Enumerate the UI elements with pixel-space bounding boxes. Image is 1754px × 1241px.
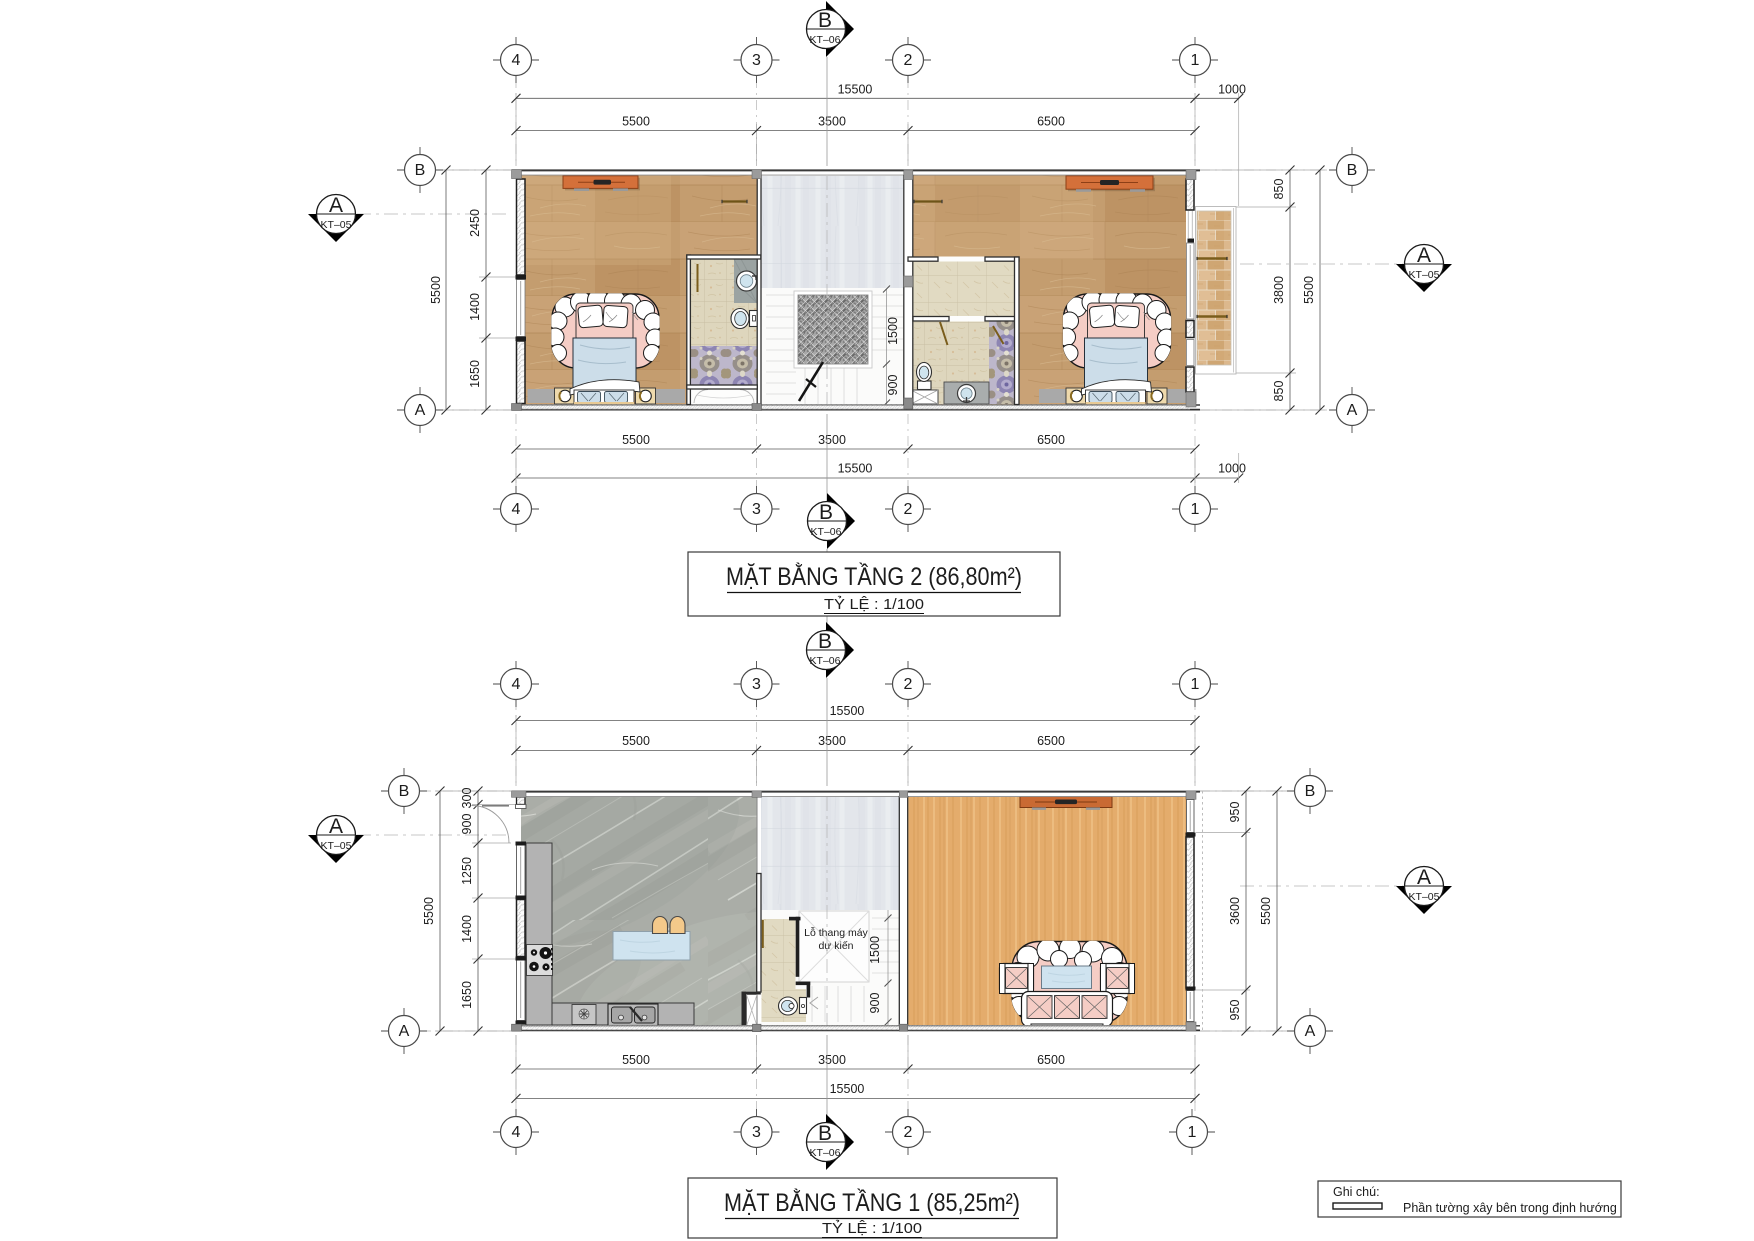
svg-text:KT–05: KT–05 (321, 840, 352, 852)
svg-text:3: 3 (752, 676, 761, 693)
svg-text:MẶT BẰNG TẦNG 1 (85,25m²): MẶT BẰNG TẦNG 1 (85,25m²) (724, 1188, 1020, 1217)
svg-text:3: 3 (752, 1124, 761, 1141)
svg-text:5500: 5500 (622, 734, 650, 748)
svg-text:B: B (819, 501, 833, 524)
svg-text:A: A (1305, 1023, 1316, 1040)
svg-text:15500: 15500 (838, 462, 873, 476)
svg-text:B: B (818, 630, 832, 653)
svg-text:950: 950 (1228, 802, 1242, 823)
svg-text:5500: 5500 (422, 897, 436, 925)
svg-text:3: 3 (752, 501, 761, 518)
svg-text:2: 2 (904, 676, 913, 693)
svg-text:TỶ LỆ : 1/100: TỶ LỆ : 1/100 (822, 1220, 922, 1237)
svg-text:B: B (399, 783, 410, 800)
svg-text:B: B (818, 1122, 832, 1145)
svg-text:KT–06: KT–06 (810, 34, 841, 46)
svg-text:1000: 1000 (1218, 462, 1246, 476)
svg-text:3500: 3500 (818, 734, 846, 748)
svg-text:B: B (1305, 783, 1316, 800)
svg-text:3: 3 (752, 52, 761, 69)
svg-text:1400: 1400 (468, 293, 482, 321)
svg-text:1650: 1650 (460, 981, 474, 1009)
svg-text:1: 1 (1191, 52, 1200, 69)
svg-text:900: 900 (886, 375, 900, 396)
svg-text:950: 950 (1228, 1000, 1242, 1021)
svg-text:A: A (329, 815, 343, 838)
svg-text:A: A (1417, 866, 1431, 889)
svg-text:850: 850 (1272, 381, 1286, 402)
svg-text:1: 1 (1188, 1124, 1197, 1141)
svg-text:850: 850 (1272, 179, 1286, 200)
svg-text:KT–05: KT–05 (1409, 891, 1440, 903)
svg-text:6500: 6500 (1037, 433, 1065, 447)
svg-text:1250: 1250 (460, 857, 474, 885)
svg-text:2: 2 (904, 52, 913, 69)
svg-text:3800: 3800 (1272, 276, 1286, 304)
svg-text:A: A (1347, 402, 1358, 419)
svg-text:1500: 1500 (886, 317, 900, 345)
svg-text:3600: 3600 (1228, 897, 1242, 925)
svg-text:KT–06: KT–06 (810, 655, 841, 667)
svg-text:A: A (1417, 244, 1431, 267)
svg-text:5500: 5500 (1302, 276, 1316, 304)
svg-text:A: A (399, 1023, 410, 1040)
svg-text:15500: 15500 (838, 83, 873, 97)
svg-text:5500: 5500 (622, 433, 650, 447)
svg-text:4: 4 (512, 52, 521, 69)
svg-text:Lỗ thang máy: Lỗ thang máy (804, 926, 868, 939)
svg-text:Phần tường xây bên trong định: Phần tường xây bên trong định hướng (1403, 1201, 1617, 1215)
svg-text:1650: 1650 (468, 360, 482, 388)
svg-text:A: A (329, 194, 343, 217)
svg-text:1500: 1500 (868, 936, 882, 964)
svg-text:A: A (415, 402, 426, 419)
svg-text:2450: 2450 (468, 209, 482, 237)
svg-text:6500: 6500 (1037, 734, 1065, 748)
svg-text:1400: 1400 (460, 915, 474, 943)
svg-text:900: 900 (868, 993, 882, 1014)
svg-text:5500: 5500 (429, 276, 443, 304)
svg-text:6500: 6500 (1037, 1053, 1065, 1067)
svg-text:KT–06: KT–06 (811, 526, 842, 538)
svg-text:15500: 15500 (830, 1082, 865, 1096)
svg-text:4: 4 (512, 676, 521, 693)
svg-text:KT–05: KT–05 (321, 219, 352, 231)
svg-text:3500: 3500 (818, 115, 846, 129)
svg-text:15500: 15500 (830, 704, 865, 718)
svg-text:dự kiến: dự kiến (818, 940, 853, 952)
svg-text:KT–05: KT–05 (1409, 269, 1440, 281)
svg-text:1: 1 (1191, 501, 1200, 518)
svg-text:4: 4 (512, 501, 521, 518)
svg-text:4: 4 (512, 1124, 521, 1141)
svg-text:3500: 3500 (818, 1053, 846, 1067)
svg-text:B: B (818, 9, 832, 32)
svg-text:KT–06: KT–06 (810, 1147, 841, 1159)
svg-text:5500: 5500 (1259, 897, 1273, 925)
svg-text:1000: 1000 (1218, 83, 1246, 97)
svg-text:2: 2 (904, 501, 913, 518)
svg-text:Ghi chú:: Ghi chú: (1333, 1185, 1380, 1199)
svg-text:1: 1 (1191, 676, 1200, 693)
svg-text:B: B (415, 162, 426, 179)
svg-text:MẶT BẰNG TẦNG 2 (86,80m²): MẶT BẰNG TẦNG 2 (86,80m²) (726, 562, 1022, 591)
svg-text:3500: 3500 (818, 433, 846, 447)
svg-text:5500: 5500 (622, 115, 650, 129)
svg-text:TỶ LỆ : 1/100: TỶ LỆ : 1/100 (824, 596, 924, 613)
svg-text:2: 2 (904, 1124, 913, 1141)
svg-text:5500: 5500 (622, 1053, 650, 1067)
svg-text:B: B (1347, 162, 1358, 179)
svg-text:6500: 6500 (1037, 115, 1065, 129)
svg-text:900: 900 (460, 814, 474, 835)
